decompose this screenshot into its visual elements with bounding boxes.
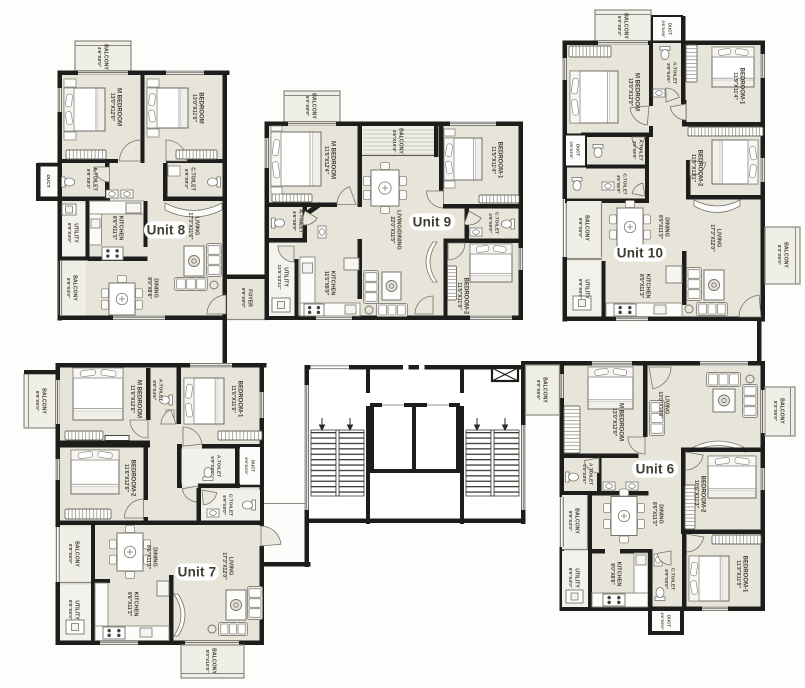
svg-text:5'9″X8'3″: 5'9″X8'3″ [184, 169, 189, 190]
svg-text:A.TOILET: A.TOILET [298, 209, 304, 233]
svg-text:8'9″X11'3″: 8'9″X11'3″ [111, 216, 117, 241]
svg-text:5'9″X3'0″: 5'9″X3'0″ [244, 457, 249, 474]
svg-text:BALCONY: BALCONY [542, 377, 548, 403]
svg-text:KITCHEN: KITCHEN [118, 216, 124, 241]
svg-text:UTILITY: UTILITY [74, 600, 80, 620]
svg-text:4'6″X2'8″: 4'6″X2'8″ [569, 141, 574, 158]
svg-text:M BEDROOM: M BEDROOM [634, 73, 640, 111]
svg-text:11'0″X13'1″: 11'0″X13'1″ [690, 154, 696, 182]
svg-text:C.TOILET: C.TOILET [228, 494, 234, 516]
svg-text:Unit 10: Unit 10 [617, 246, 663, 261]
svg-text:C.TOILET: C.TOILET [670, 568, 676, 590]
svg-text:8'9″X5'0″: 8'9″X5'0″ [578, 279, 583, 300]
svg-text:8'9″X8'6″: 8'9″X8'6″ [146, 277, 152, 299]
svg-text:11'6″X11'6″: 11'6″X11'6″ [230, 385, 236, 413]
svg-text:13'0″X16'9″: 13'0″X16'9″ [657, 391, 663, 419]
svg-text:A.TOILET: A.TOILET [158, 379, 164, 401]
svg-text:KITCHEN: KITCHEN [616, 562, 622, 587]
svg-text:DINING: DINING [658, 504, 664, 524]
svg-text:11'5″X8'9″: 11'5″X8'9″ [323, 271, 329, 296]
svg-text:8'6″X5'0″: 8'6″X5'0″ [68, 600, 73, 621]
svg-text:Unit 7: Unit 7 [178, 565, 217, 580]
svg-text:BEDROOM-2: BEDROOM-2 [700, 476, 706, 513]
svg-text:5'9″X8'0″: 5'9″X8'0″ [210, 456, 215, 476]
svg-text:2'6″X4'6″: 2'6″X4'6″ [661, 20, 666, 37]
svg-text:LIVING: LIVING [664, 396, 670, 415]
svg-text:BALCONY: BALCONY [103, 44, 109, 70]
svg-text:8'9″X11'3″: 8'9″X11'3″ [657, 215, 663, 240]
svg-text:UTILITY: UTILITY [283, 267, 289, 287]
svg-text:11'6″X12'6″: 11'6″X12'6″ [129, 385, 135, 413]
svg-text:22'0″X11'5″: 22'0″X11'5″ [389, 217, 395, 245]
svg-text:BEDROOM-1: BEDROOM-1 [497, 142, 503, 179]
svg-text:8'6″X11'3″: 8'6″X11'3″ [651, 502, 657, 527]
svg-text:13'0″X12'0″: 13'0″X12'0″ [611, 408, 617, 437]
svg-text:5'0″X8'3″: 5'0″X8'3″ [617, 16, 622, 37]
svg-text:8'9″X5'0″: 8'9″X5'0″ [578, 218, 583, 239]
svg-text:8'6″X11'3″: 8'6″X11'3″ [145, 545, 151, 570]
svg-text:M BEDROOM: M BEDROOM [618, 403, 624, 441]
svg-text:8'3″X5'0″: 8'3″X5'0″ [777, 245, 782, 266]
svg-text:KITCHEN: KITCHEN [330, 271, 336, 296]
svg-text:4'6″X8'9″: 4'6″X8'9″ [292, 211, 297, 232]
svg-text:DINING: DINING [153, 278, 159, 298]
svg-text:8'6″X11'3″: 8'6″X11'3″ [126, 592, 132, 617]
svg-text:8'9″X5'0″: 8'9″X5'0″ [68, 544, 73, 565]
svg-text:BALCONY: BALCONY [72, 275, 78, 301]
svg-text:A.TOILET: A.TOILET [672, 62, 678, 84]
svg-text:BEDROOM-2: BEDROOM-2 [130, 460, 136, 497]
svg-text:BALCONY: BALCONY [584, 215, 590, 241]
svg-text:M BEDROOM: M BEDROOM [136, 380, 142, 418]
svg-text:10'6″X11'3″: 10'6″X11'3″ [693, 480, 699, 508]
svg-text:C.TOILET: C.TOILET [190, 167, 196, 191]
svg-text:UTILITY: UTILITY [73, 223, 79, 243]
svg-text:5'0″X8'6″: 5'0″X8'6″ [582, 464, 587, 484]
svg-text:8'9″X11'3″: 8'9″X11'3″ [638, 274, 644, 299]
svg-text:DUCT: DUCT [45, 174, 51, 187]
svg-text:UTILITY: UTILITY [574, 568, 580, 588]
svg-text:8'9″X8'0″: 8'9″X8'0″ [241, 288, 246, 309]
svg-text:BEDROOM-2: BEDROOM-2 [463, 278, 469, 315]
svg-text:8'0″X4'6″: 8'0″X4'6″ [152, 380, 157, 400]
svg-text:4'6″X8'0″: 4'6″X8'0″ [97, 47, 102, 68]
svg-text:KITCHEN: KITCHEN [645, 274, 651, 299]
svg-text:LIVING: LIVING [228, 557, 234, 576]
svg-text:A.TOILET: A.TOILET [588, 463, 594, 485]
svg-text:17'3″X12'0″: 17'3″X12'0″ [221, 552, 227, 580]
svg-text:13'0″X11'6″: 13'0″X11'6″ [191, 94, 197, 122]
svg-text:BEDROOM-2: BEDROOM-2 [697, 150, 703, 187]
svg-text:5'9″X8'0″: 5'9″X8'0″ [222, 495, 227, 515]
svg-text:FOYER: FOYER [247, 289, 253, 307]
svg-text:A.TOILET: A.TOILET [216, 455, 222, 477]
svg-text:LIVING: LIVING [716, 229, 722, 248]
svg-text:8'3″X5'0″: 8'3″X5'0″ [773, 401, 778, 422]
svg-text:5'9″X8'3″: 5'9″X8'3″ [86, 169, 91, 190]
svg-text:11'9″X11'4″: 11'9″X11'4″ [732, 72, 738, 100]
svg-text:A.TOILET: A.TOILET [639, 139, 644, 160]
svg-text:17'3″X11'6″: 17'3″X11'6″ [187, 213, 193, 241]
svg-text:8'9″X4'0″: 8'9″X4'0″ [568, 511, 573, 532]
svg-text:8'0″X4'0″: 8'0″X4'0″ [568, 568, 573, 589]
svg-text:M BEDROOM: M BEDROOM [116, 88, 122, 126]
svg-text:8'0″X8'6″: 8'0″X8'6″ [609, 563, 615, 585]
svg-text:5'0″X8'9″: 5'0″X8'9″ [305, 96, 310, 117]
svg-text:BEDROOM-1: BEDROOM-1 [742, 556, 748, 593]
svg-text:11'5″X3'11″: 11'5″X3'11″ [277, 265, 282, 291]
svg-text:11'5″X12'4″: 11'5″X12'4″ [323, 146, 329, 174]
svg-text:DUCT: DUCT [251, 460, 256, 472]
svg-text:11'5″X11'4″: 11'5″X11'4″ [490, 146, 496, 174]
svg-text:DUCT: DUCT [668, 23, 673, 35]
svg-text:LIVING/DINING: LIVING/DINING [396, 210, 402, 250]
svg-text:11'5″X11'0″: 11'5″X11'0″ [456, 282, 462, 310]
svg-text:BEDROOM-1: BEDROOM-1 [739, 68, 745, 105]
svg-text:4'6″X8'9″: 4'6″X8'9″ [488, 213, 493, 233]
svg-text:8'0″X4'6″: 8'0″X4'6″ [666, 63, 671, 83]
svg-text:11'6″X12'6″: 11'6″X12'6″ [123, 464, 129, 492]
svg-text:4'6″X8'0″: 4'6″X8'0″ [632, 141, 637, 160]
svg-text:8'0″X6'6″: 8'0″X6'6″ [536, 380, 541, 401]
svg-text:C.TOILET: C.TOILET [494, 212, 500, 234]
svg-text:5'0″X10'0″: 5'0″X10'0″ [205, 650, 210, 674]
svg-text:BALCONY: BALCONY [779, 398, 785, 424]
svg-text:11'3″X11'0″: 11'3″X11'0″ [735, 560, 741, 588]
svg-text:8'9″X4'0″: 8'9″X4'0″ [67, 223, 72, 244]
svg-text:BALCONY: BALCONY [398, 128, 404, 154]
svg-text:Unit 8: Unit 8 [147, 223, 186, 238]
svg-text:A.TOILET: A.TOILET [92, 167, 98, 191]
svg-text:BALCONY: BALCONY [74, 541, 80, 567]
svg-text:DUCT: DUCT [667, 615, 672, 627]
svg-text:DINING: DINING [664, 217, 670, 237]
svg-text:BEDROOM-1: BEDROOM-1 [237, 381, 243, 418]
svg-text:BALCONY: BALCONY [41, 388, 47, 414]
svg-text:BALCONY: BALCONY [623, 13, 629, 39]
svg-text:DINING: DINING [152, 547, 158, 567]
svg-text:BALCONY: BALCONY [574, 508, 580, 534]
svg-text:BALCONY: BALCONY [211, 648, 217, 674]
svg-text:LIVING: LIVING [194, 217, 200, 236]
svg-text:M BEDROOM: M BEDROOM [330, 141, 336, 179]
svg-text:17'3″X12'0″: 17'3″X12'0″ [709, 224, 715, 252]
svg-text:BEDROOM: BEDROOM [198, 92, 204, 123]
svg-text:8'9″X4'0″: 8'9″X4'0″ [66, 278, 71, 299]
svg-text:4'6″X8'0″: 4'6″X8'0″ [616, 175, 621, 194]
svg-text:KITCHEN: KITCHEN [133, 592, 139, 617]
svg-text:Unit 6: Unit 6 [636, 462, 675, 477]
svg-text:8'9″X5'0″: 8'9″X5'0″ [35, 391, 40, 412]
svg-text:13'0″X12'0″: 13'0″X12'0″ [627, 78, 633, 107]
svg-text:13'0″X12'0″: 13'0″X12'0″ [109, 93, 115, 122]
svg-text:4'6″X19'4″: 4'6″X19'4″ [392, 130, 397, 154]
svg-text:C.TOILET: C.TOILET [623, 173, 628, 194]
svg-text:2'6″X5'0″: 2'6″X5'0″ [660, 612, 665, 629]
svg-text:BALCONY: BALCONY [311, 93, 317, 119]
svg-text:UTILITY: UTILITY [584, 279, 590, 299]
svg-text:BALCONY: BALCONY [783, 242, 789, 268]
svg-text:Unit 9: Unit 9 [413, 215, 452, 230]
svg-text:DUCT: DUCT [576, 144, 581, 156]
svg-text:8'9″X5'0″: 8'9″X5'0″ [664, 569, 669, 589]
